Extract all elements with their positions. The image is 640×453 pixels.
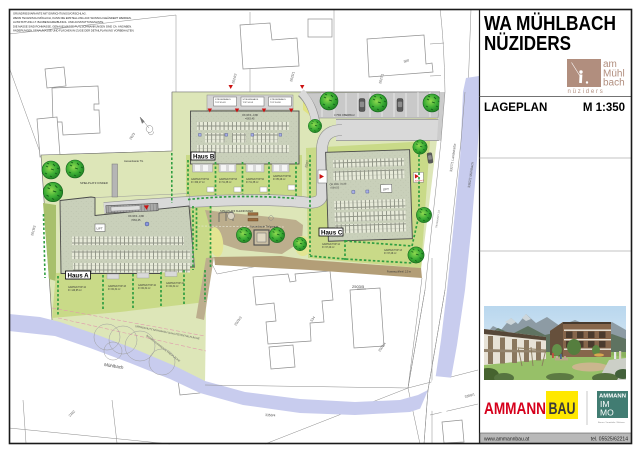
svg-text:GARTEN TOP 52: GARTEN TOP 52	[246, 178, 265, 181]
svg-text:SPIELPLATZ KLEINKINDER: SPIELPLATZ KLEINKINDER	[220, 209, 253, 213]
svg-text:MO: MO	[600, 408, 614, 418]
svg-text:ÄNDERUNGEN GENAUMASSE UND FLÄC: ÄNDERUNGEN GENAUMASSE UND FLÄCHEN IM ZUG…	[13, 29, 135, 33]
svg-text:GARTEN TOP 53: GARTEN TOP 53	[219, 178, 238, 181]
svg-text:2503/5: 2503/5	[352, 284, 365, 289]
svg-text:F= 97,26 m²: F= 97,26 m²	[384, 252, 397, 255]
svg-text:M 1:350: M 1:350	[583, 102, 625, 114]
svg-text:AUSSTATTUNG LT. BAUBESCHREIBUN: AUSSTATTUNG LT. BAUBESCHREIBUNGS- UND AU…	[13, 20, 104, 24]
svg-text:F= 150,17 m²: F= 150,17 m²	[191, 181, 205, 184]
svg-text:GARTEN TOP 42: GARTEN TOP 42	[138, 284, 157, 287]
svg-text:F= 82,31 m²: F= 82,31 m²	[108, 288, 121, 291]
svg-text:=564,55: =564,55	[330, 185, 340, 189]
svg-text:LAGEPLAN: LAGEPLAN	[484, 102, 547, 114]
svg-text:Aussenkante TG: Aussenkante TG	[124, 159, 143, 163]
svg-text:F= 140,95 m²: F= 140,95 m²	[68, 289, 82, 292]
svg-text:F= 82,31 m²: F= 82,31 m²	[166, 285, 179, 288]
svg-text:GRUNDRISSVARIANTE MIT EINRICHT: GRUNDRISSVARIANTE MIT EINRICHTUNGSVORSCH…	[13, 12, 87, 16]
svg-text:F= 51,35 m²: F= 51,35 m²	[219, 181, 232, 184]
svg-text:nüziders: nüziders	[568, 89, 605, 95]
svg-text:GARTEN TOP 50: GARTEN TOP 50	[273, 175, 292, 178]
svg-text:3.750t OBERBAU: 3.750t OBERBAU	[334, 113, 355, 117]
svg-text:Bauen. Vermitteln. Wohnen.: Bauen. Vermitteln. Wohnen.	[598, 421, 626, 424]
svg-text:GARTEN TOP 43: GARTEN TOP 43	[108, 285, 127, 288]
svg-text:GARTEN TOP 54: GARTEN TOP 54	[191, 178, 210, 181]
svg-text:NÜZIDERS: NÜZIDERS	[484, 32, 571, 55]
svg-text:TOP 45-49: TOP 45-49	[215, 102, 226, 104]
svg-text:OK RFb -0,80: OK RFb -0,80	[128, 214, 145, 218]
svg-text:SPIELPLATZ KINDER: SPIELPLATZ KINDER	[80, 181, 108, 185]
svg-text:OK RFb -0,80: OK RFb -0,80	[242, 113, 259, 117]
svg-text:STIEGENHAUS: STIEGENHAUS	[215, 98, 231, 101]
svg-text:tel. 05525/62214: tel. 05525/62214	[591, 437, 628, 443]
svg-text:F= 85,26 m²: F= 85,26 m²	[273, 178, 286, 181]
svg-text:AMMANN: AMMANN	[484, 400, 546, 418]
svg-text:LIFT: LIFT	[383, 187, 389, 191]
svg-text:STIEGENHAUS: STIEGENHAUS	[270, 98, 286, 101]
svg-text:BAU: BAU	[549, 400, 576, 418]
svg-text:STIEGENHAUS: STIEGENHAUS	[243, 98, 259, 101]
svg-text:Haus C: Haus C	[321, 230, 343, 237]
svg-text:GARTEN TOP 12: GARTEN TOP 12	[322, 243, 341, 246]
svg-text:=563,45: =563,45	[245, 117, 255, 121]
svg-text:F= 97,20 m²: F= 97,20 m²	[322, 246, 335, 249]
svg-text:Haus B: Haus B	[193, 154, 215, 161]
svg-text:=563,45: =563,45	[131, 218, 141, 222]
svg-text:LIFT: LIFT	[97, 227, 103, 231]
svg-text:F= 51,35 m²: F= 51,35 m²	[246, 181, 259, 184]
svg-text:WENN TECHNISCH MÖGLICH, KANN D: WENN TECHNISCH MÖGLICH, KANN DIE ERSTELL…	[13, 16, 132, 20]
svg-text:www.ammannbau.at: www.ammannbau.at	[484, 437, 530, 443]
svg-text:GARTEN TOP 41: GARTEN TOP 41	[166, 282, 185, 285]
svg-text:GARTEN TOP 13: GARTEN TOP 13	[384, 249, 403, 252]
svg-text:bach: bach	[603, 78, 625, 89]
svg-text:GARTEN TOP 44: GARTEN TOP 44	[68, 286, 87, 289]
svg-text:TOP 50-53: TOP 50-53	[243, 102, 254, 104]
svg-text:DIE MASSE SIND ROHMASSE, GENAU: DIE MASSE SIND ROHMASSE, GENAUE MASSE PU…	[13, 24, 132, 28]
svg-text:Fussweg öffentl. 2,5 m: Fussweg öffentl. 2,5 m	[387, 271, 411, 274]
svg-text:3358/4: 3358/4	[265, 413, 276, 418]
svg-text:TOP 54-58: TOP 54-58	[270, 102, 281, 104]
svg-text:Haus A: Haus A	[68, 273, 90, 280]
svg-text:F= 82,31 m²: F= 82,31 m²	[138, 287, 151, 290]
